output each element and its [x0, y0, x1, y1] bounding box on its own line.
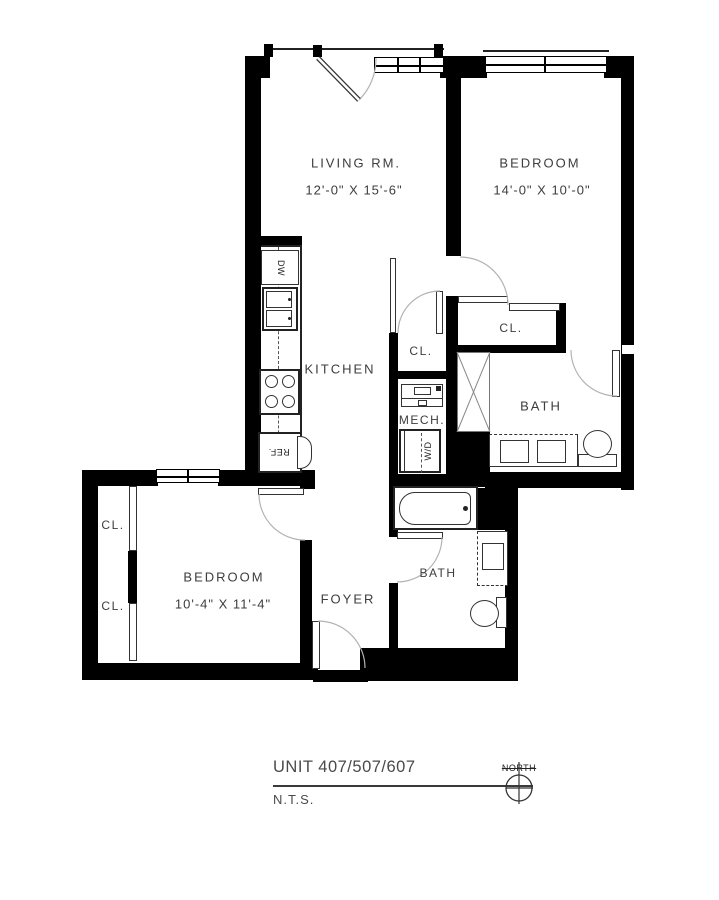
wall-bedroom2-left: [82, 470, 98, 680]
living-room-label: LIVING RM.: [311, 156, 401, 171]
bedroom2-door-leaf: [258, 488, 304, 495]
wall-mech-left: [389, 333, 398, 480]
door-arc-bath-upper: [571, 350, 617, 396]
floorplan-canvas: DW REF. W/D: [0, 0, 719, 900]
balcony-door-leaf-inner: [318, 58, 359, 100]
wall-bath-upper-bottom: [485, 472, 634, 488]
closet2-door-lower: [129, 603, 137, 661]
living-window-midline: [375, 65, 443, 67]
wall-closet2-post: [128, 551, 137, 603]
vanity-upper: [489, 434, 578, 467]
vanity-upper-sink-2: [537, 440, 566, 463]
vanity-upper-sink-1: [500, 440, 529, 463]
wall-living-bedroom-divider: [446, 56, 461, 256]
door-arc-entry: [318, 621, 365, 668]
stove: [259, 369, 300, 415]
title-underline: [273, 785, 533, 787]
foyer-label: FOYER: [321, 592, 376, 607]
bedroom1-window-mullion: [544, 57, 546, 72]
unit-title: UNIT 407/507/607: [273, 758, 416, 777]
wall-below-shower: [446, 430, 490, 487]
living-window-mullion: [397, 58, 399, 72]
washer-dryer: [399, 429, 441, 473]
wall-closet-mech-divider: [389, 371, 446, 379]
bedroom2-window-mullion: [187, 470, 189, 482]
burner-4: [282, 395, 295, 408]
vanity-lower-sink: [482, 543, 504, 570]
wd-left-double-line: [404, 431, 405, 471]
panel-inner-rect: [414, 387, 431, 395]
kitchen-counter-top: [261, 245, 301, 247]
closet1-sliding-door-a: [458, 296, 508, 303]
wall-tub-right-mass: [477, 488, 505, 530]
door-arc-hall-closet: [398, 291, 440, 333]
bedroom1-face-line: [483, 50, 609, 52]
closet2-door-upper: [129, 486, 137, 551]
bathtub-drain: [463, 506, 468, 511]
entry-door-leaf: [312, 621, 320, 669]
balcony-jamb-tab-left: [264, 44, 273, 57]
wall-bedroom2-right-lower: [300, 540, 312, 680]
burner-2: [282, 375, 295, 388]
closet1-sliding-door-b: [509, 303, 560, 311]
wall-living-left: [245, 56, 261, 483]
burner-3: [265, 395, 278, 408]
panel-corner-square: [436, 386, 441, 391]
wall-closet1-left: [446, 296, 458, 352]
wall-kitchen-bulkhead: [245, 236, 302, 245]
living-room-dims: 12'-0" X 15'-6": [305, 183, 402, 198]
panel-shelf-line: [402, 398, 442, 399]
toilet-upper-bowl: [583, 430, 612, 458]
vanity-lower: [477, 531, 508, 586]
closet-label-hall: CL.: [409, 344, 432, 358]
wall-bedroom2-right-stub: [300, 470, 315, 489]
wall-under-entry-door: [313, 670, 368, 682]
north-label: NORTH: [502, 763, 536, 773]
closet-label-bedroom1: CL.: [499, 321, 522, 335]
bathtub-inner: [399, 492, 471, 525]
bedroom1-label: BEDROOM: [499, 156, 580, 171]
balcony-door-leaf-outer: [318, 58, 359, 100]
north-arrow-circle: [506, 775, 532, 801]
living-window-mullion2: [419, 58, 421, 72]
bathtub: [393, 486, 478, 530]
bedroom1-window: [485, 56, 607, 73]
kitchen-counter-edge: [300, 245, 302, 433]
bath-upper-label: BATH: [520, 399, 562, 414]
wall-bedroom2-bottom: [82, 663, 318, 680]
scale-note: N.T.S.: [273, 792, 314, 807]
kitchen-label: KITCHEN: [304, 362, 375, 377]
bedroom2-dims: 10'-4" X 11'-4": [175, 597, 271, 612]
kitchen-sink: [262, 287, 298, 331]
bath-lower-label: BATH: [419, 566, 456, 580]
wall-bath-lower-west-lower: [389, 583, 398, 648]
door-arc-bedroom2: [259, 494, 305, 540]
wall-right-exterior: [621, 56, 634, 490]
living-window: [374, 57, 444, 73]
washer-dryer-label: W/D: [423, 442, 433, 461]
refrigerator-label: REF.: [268, 447, 290, 457]
closet-label-bedroom2-upper: CL.: [101, 518, 124, 532]
shower-stall: [457, 352, 490, 432]
balcony-door-jamb-tab: [313, 45, 322, 57]
bedroom1-window-midline: [486, 64, 606, 66]
refrigerator-door-bump: [297, 436, 312, 469]
bath-lower-door-leaf: [397, 532, 443, 539]
bath-upper-door-leaf: [612, 350, 620, 397]
door-jamb-notch: [622, 345, 634, 354]
balcony-face-line: [268, 48, 444, 50]
mech-label: MECH.: [399, 413, 445, 427]
hall-opening-jamb: [390, 258, 396, 333]
bedroom2-label: BEDROOM: [183, 570, 264, 585]
hall-closet-door-leaf: [436, 291, 443, 334]
toilet-lower-bowl: [470, 600, 499, 627]
wall-bottom-right-mass: [360, 648, 518, 681]
bedroom1-dims: 14'-0" X 10'-0": [493, 183, 590, 198]
sink-faucet-dot-1: [288, 298, 291, 301]
burner-1: [265, 375, 278, 388]
panel-lower-rect: [418, 400, 427, 406]
closet-label-bedroom2-lower: CL.: [101, 599, 124, 613]
sink-faucet-dot-2: [288, 317, 291, 320]
balcony-jamb-tab-right: [434, 44, 443, 57]
mech-equipment-panel: [401, 384, 443, 407]
wd-center-dashed: [421, 433, 422, 473]
dishwasher-label: DW: [276, 260, 286, 276]
bedroom2-window: [156, 469, 220, 483]
